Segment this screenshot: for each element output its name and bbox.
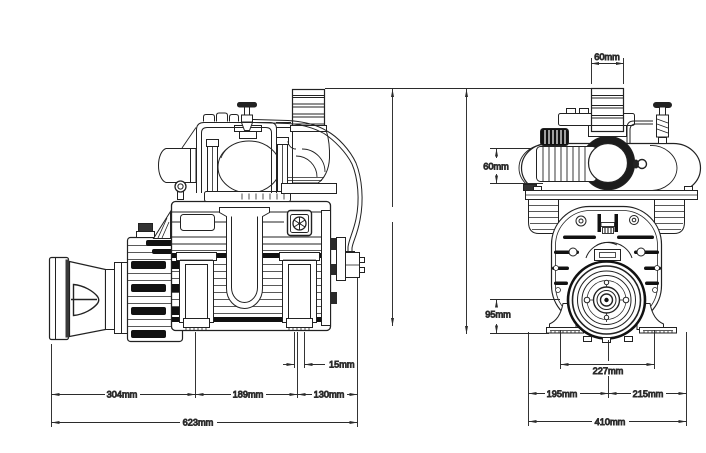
svg-text:130mm: 130mm	[314, 390, 345, 400]
svg-text:60mm: 60mm	[483, 162, 509, 172]
svg-text:215mm: 215mm	[633, 389, 664, 399]
svg-text:410mm: 410mm	[595, 417, 626, 427]
svg-text:304mm: 304mm	[107, 390, 138, 400]
svg-text:623mm: 623mm	[183, 418, 214, 428]
svg-text:95mm: 95mm	[485, 310, 511, 320]
svg-text:195mm: 195mm	[547, 389, 578, 399]
svg-text:189mm: 189mm	[233, 390, 264, 400]
svg-text:15mm: 15mm	[329, 360, 355, 370]
svg-text:60mm: 60mm	[594, 52, 620, 62]
svg-text:227mm: 227mm	[593, 366, 624, 376]
